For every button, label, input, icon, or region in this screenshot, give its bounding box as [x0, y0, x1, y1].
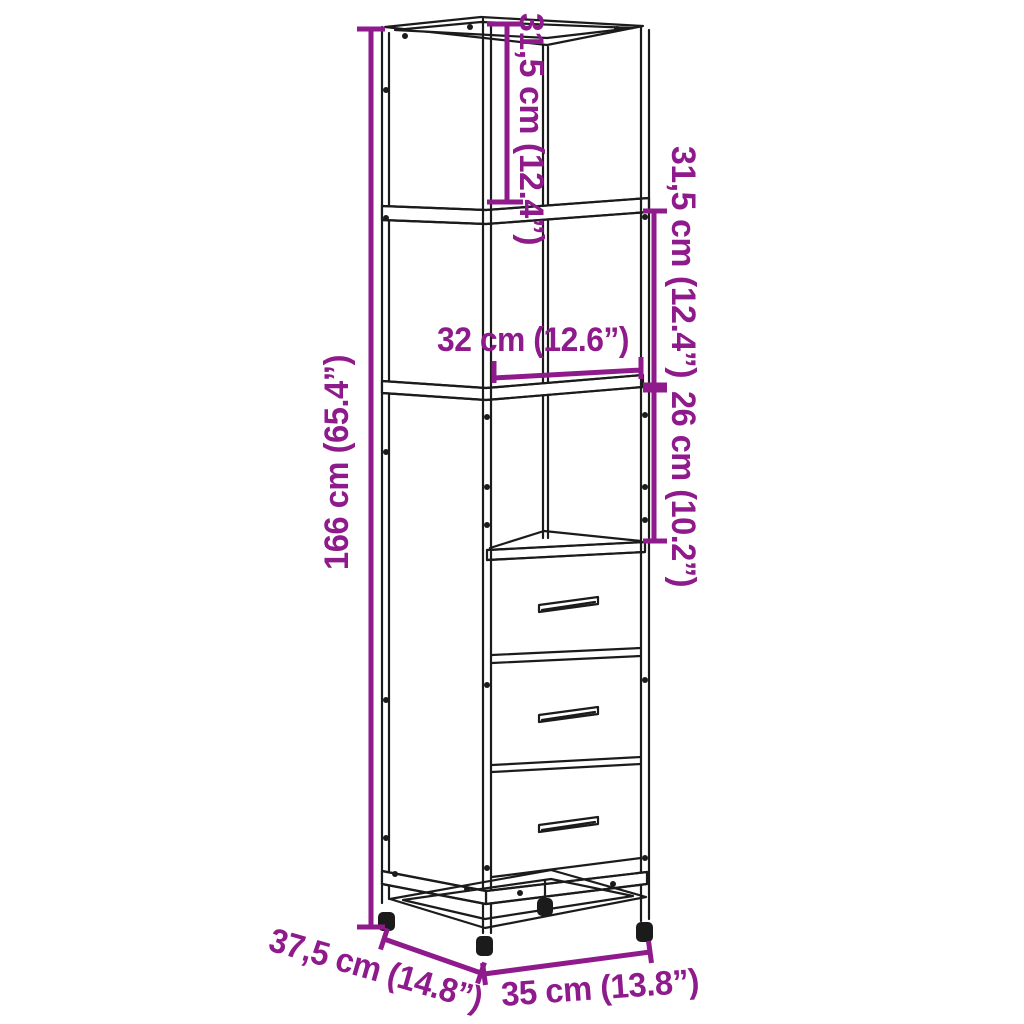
- drawer-handle-3: [539, 817, 598, 832]
- drawer-unit-top-shelf: [487, 531, 645, 560]
- label-middle-section-height: 31,5 cm (12.4”): [664, 146, 702, 378]
- front-left-post: [483, 19, 491, 933]
- label-lower-shelf-height: 26 cm (10.2”): [664, 391, 702, 587]
- dimension-lines: [357, 24, 667, 985]
- dim-line-total-height: [357, 29, 385, 927]
- drawer-handle-2: [539, 707, 598, 722]
- back-left-post: [382, 27, 389, 903]
- label-top-section-height: 31,5 cm (12.4”): [512, 13, 550, 245]
- product-dimension-diagram: 31,5 cm (12.4”) 31,5 cm (12.4”) 32 cm (1…: [0, 0, 1024, 1024]
- label-total-height: 166 cm (65.4”): [318, 355, 356, 570]
- drawer-separator-2: [492, 757, 641, 772]
- label-depth: 37,5 cm (14.8”): [265, 921, 487, 1018]
- drawer-handle-1: [539, 597, 598, 612]
- dim-line-middle-section-height: [643, 211, 667, 385]
- foot-back-right: [537, 898, 553, 916]
- foot-front-left: [476, 936, 493, 956]
- label-shelf-width: 32 cm (12.6”): [437, 321, 629, 359]
- feet: [378, 898, 653, 956]
- cabinet-line-drawing: 31,5 cm (12.4”) 31,5 cm (12.4”) 32 cm (1…: [0, 0, 1024, 1024]
- front-right-post: [641, 27, 649, 921]
- drawers: [492, 597, 641, 877]
- foot-front-right: [636, 922, 653, 942]
- drawer-separator-1: [492, 648, 641, 663]
- bottom-rail-left: [382, 871, 486, 904]
